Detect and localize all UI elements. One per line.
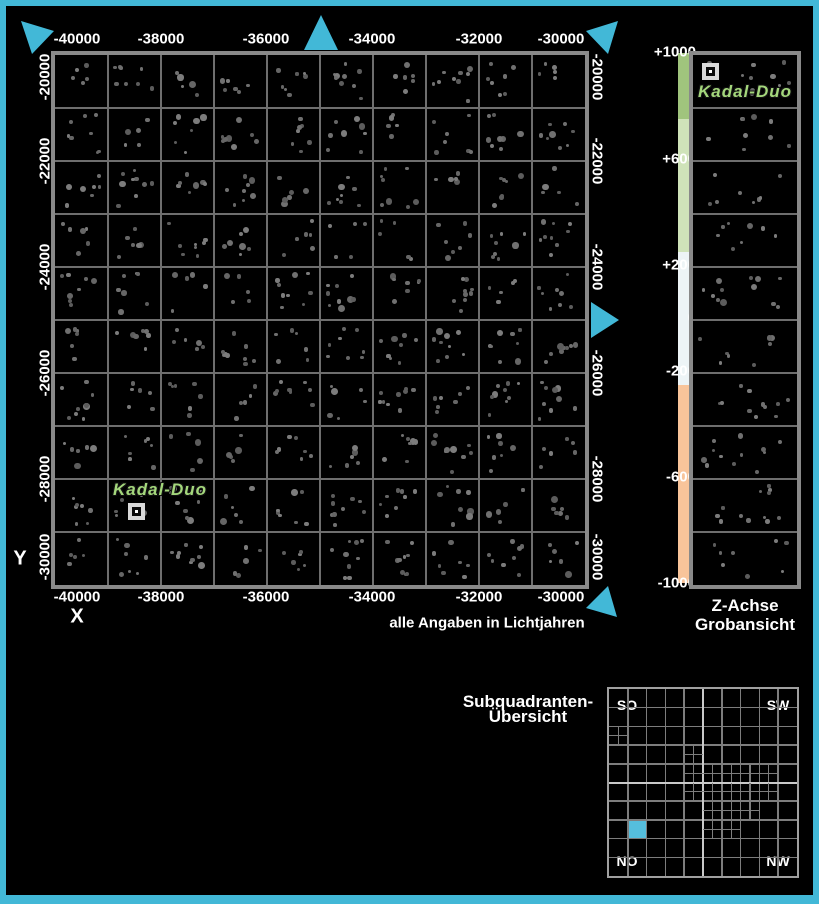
star [544, 360, 548, 364]
star [342, 74, 348, 80]
star [70, 447, 75, 452]
star [466, 99, 469, 102]
star [91, 393, 94, 396]
star [517, 573, 521, 577]
star [73, 327, 77, 331]
star [431, 440, 437, 446]
grid-line [425, 55, 427, 585]
star [194, 246, 197, 249]
star [225, 188, 229, 192]
star [232, 331, 236, 335]
star [569, 305, 573, 309]
star [702, 288, 705, 291]
star [193, 182, 199, 188]
star [548, 123, 551, 126]
star [393, 74, 398, 79]
grid-line [693, 266, 797, 268]
star [247, 299, 251, 303]
star [382, 400, 385, 403]
star [556, 396, 562, 402]
star [466, 564, 470, 568]
star [389, 115, 395, 121]
star [552, 549, 557, 554]
star [77, 288, 80, 291]
star [346, 356, 350, 360]
star [433, 396, 438, 401]
star [66, 184, 72, 190]
star [84, 277, 88, 281]
star [555, 243, 559, 247]
star [188, 406, 193, 411]
z-axis-strip-map[interactable] [689, 51, 801, 589]
star [86, 241, 90, 245]
star [190, 129, 193, 132]
star [134, 194, 138, 198]
star [381, 178, 385, 182]
nav-arrow-south-east[interactable] [586, 586, 617, 617]
star [566, 230, 569, 233]
star [731, 247, 735, 251]
star [405, 460, 409, 464]
star [357, 69, 362, 74]
star [190, 468, 194, 472]
star [300, 457, 303, 460]
star [405, 167, 409, 171]
star [172, 272, 178, 278]
star [448, 540, 454, 546]
star [542, 184, 549, 191]
star [350, 274, 354, 278]
z-system-label[interactable]: Kadal-Duo [698, 82, 792, 102]
star [299, 550, 303, 554]
star [434, 150, 438, 154]
star [394, 506, 398, 510]
star [404, 62, 410, 68]
star [292, 272, 298, 278]
star [275, 278, 279, 282]
star [469, 291, 473, 295]
star [299, 150, 302, 153]
x-tick-label: -40000 [54, 589, 101, 606]
star [304, 232, 309, 237]
star [294, 436, 298, 440]
star [121, 290, 126, 295]
star [220, 78, 225, 83]
star [75, 68, 79, 72]
system-marker-inner [132, 507, 141, 516]
y-tick-label: -20000 [589, 54, 606, 101]
star [515, 358, 521, 364]
grid-line [55, 372, 585, 374]
star [236, 117, 242, 123]
star [503, 74, 508, 79]
star [347, 564, 352, 569]
star [719, 519, 723, 523]
star [231, 144, 237, 150]
star [363, 222, 367, 226]
x-tick-label: -38000 [138, 589, 185, 606]
star [488, 413, 492, 417]
star [488, 286, 492, 290]
star [80, 504, 84, 508]
star [304, 522, 308, 526]
star [195, 93, 199, 97]
star [171, 309, 174, 312]
star [496, 433, 501, 438]
star [196, 254, 200, 258]
star [778, 440, 782, 444]
star [505, 180, 508, 183]
star [565, 515, 569, 519]
star [144, 439, 147, 442]
star [469, 150, 473, 154]
star [341, 507, 345, 511]
star [341, 130, 348, 137]
star [466, 490, 470, 494]
star [65, 203, 70, 208]
star [781, 570, 784, 573]
star [88, 508, 92, 512]
star [66, 273, 70, 277]
star [439, 396, 443, 400]
star [400, 489, 405, 494]
star [559, 291, 565, 297]
star [379, 339, 384, 344]
star [76, 407, 80, 411]
star [276, 68, 281, 73]
star [489, 469, 493, 473]
star [558, 146, 562, 150]
star [767, 335, 773, 341]
star [573, 342, 579, 348]
star [402, 333, 407, 338]
star [70, 344, 74, 348]
star [252, 359, 256, 363]
star [406, 554, 409, 557]
system-label[interactable]: Kadal-Duo [113, 480, 207, 500]
star [86, 522, 89, 525]
star [405, 572, 409, 576]
star [306, 358, 309, 361]
star [464, 277, 469, 282]
star [246, 290, 250, 294]
star [340, 194, 343, 197]
star [557, 343, 564, 350]
star [739, 514, 743, 518]
star [76, 251, 81, 256]
star [331, 388, 338, 395]
star [461, 277, 465, 281]
star [467, 444, 471, 448]
star [466, 386, 470, 390]
star [303, 188, 309, 194]
star [389, 134, 394, 139]
star [552, 387, 558, 393]
star [379, 391, 383, 395]
star [456, 330, 461, 335]
star [201, 345, 205, 349]
subquadrant-grid[interactable]: SO SW NO NW [607, 687, 799, 878]
star [233, 203, 237, 207]
star [281, 293, 285, 297]
star [334, 120, 339, 125]
grid-line [55, 531, 585, 533]
star [456, 79, 461, 84]
star [198, 394, 202, 398]
star [413, 489, 417, 493]
star [497, 330, 503, 336]
x-tick-label: -36000 [243, 589, 290, 606]
star [133, 334, 139, 340]
star [239, 243, 246, 250]
star [243, 357, 247, 361]
subq-subdivision-line [703, 810, 722, 811]
star [571, 441, 576, 446]
y-tick-label: -28000 [37, 456, 54, 503]
star [334, 255, 338, 259]
star [492, 113, 496, 117]
star [226, 79, 229, 82]
star [716, 234, 720, 238]
star [432, 120, 436, 124]
star [286, 294, 290, 298]
star [138, 388, 143, 393]
nav-arrow-east[interactable] [591, 302, 619, 338]
subq-subdivision-line [609, 735, 628, 736]
star [403, 89, 408, 94]
star [386, 124, 390, 128]
star [417, 279, 421, 283]
star [432, 551, 437, 556]
y-tick-label: -24000 [37, 244, 54, 291]
star [391, 336, 397, 342]
star [712, 449, 715, 452]
star [277, 176, 281, 180]
star [441, 571, 446, 576]
y-tick-label: -30000 [589, 534, 606, 581]
star [124, 82, 128, 86]
star [751, 284, 757, 290]
star [244, 344, 248, 348]
z-system-marker[interactable] [702, 63, 719, 80]
star [183, 509, 187, 513]
star [516, 342, 519, 345]
star [250, 193, 256, 199]
x-tick-label: -30000 [538, 589, 585, 606]
star [406, 255, 410, 259]
star [74, 412, 78, 416]
star [396, 392, 401, 397]
star [334, 76, 339, 81]
star [716, 278, 722, 284]
star [549, 408, 553, 412]
star [541, 292, 545, 296]
star [379, 503, 382, 506]
star [124, 543, 129, 548]
star [492, 455, 496, 459]
star [83, 114, 87, 118]
star [706, 137, 710, 141]
star [541, 219, 546, 224]
star [242, 199, 245, 202]
star [144, 555, 148, 559]
star [548, 543, 552, 547]
frame-bottom [0, 895, 819, 904]
star [223, 88, 227, 92]
star [290, 328, 294, 332]
star [184, 543, 187, 546]
star [742, 118, 745, 121]
star [544, 62, 547, 65]
star [732, 462, 736, 466]
star [385, 540, 390, 545]
star [63, 442, 66, 445]
star [437, 80, 441, 84]
star [277, 283, 281, 287]
star [746, 518, 750, 522]
star [140, 67, 143, 70]
star [459, 309, 463, 313]
star [414, 338, 418, 342]
star [76, 449, 79, 452]
star [358, 500, 361, 503]
star [554, 511, 558, 515]
star [458, 392, 462, 396]
star [573, 406, 577, 410]
star [289, 190, 294, 195]
star [125, 129, 131, 135]
star [280, 306, 283, 309]
star [538, 417, 542, 421]
y-tick-label: -20000 [37, 54, 54, 101]
subq-subdivision-line [759, 791, 778, 792]
star [231, 506, 234, 509]
star [566, 273, 570, 277]
star [565, 571, 572, 578]
star [243, 227, 249, 233]
star [767, 491, 771, 495]
star [498, 360, 502, 364]
star [769, 119, 773, 123]
star [511, 65, 516, 70]
nav-arrow-north[interactable] [304, 15, 338, 50]
star [118, 309, 124, 315]
nav-arrow-north-east[interactable] [586, 21, 618, 54]
star [765, 519, 770, 524]
y-tick-label: -22000 [589, 138, 606, 185]
grid-line [693, 531, 797, 533]
star [197, 555, 201, 559]
star [436, 359, 440, 363]
star [359, 97, 362, 100]
star [543, 235, 547, 239]
star [136, 272, 140, 276]
star [768, 135, 774, 141]
star [518, 328, 521, 331]
star [116, 204, 121, 209]
star [549, 451, 554, 456]
star [740, 453, 743, 456]
star [496, 300, 501, 305]
star [309, 233, 313, 237]
star [720, 288, 724, 292]
star [486, 511, 493, 518]
star [185, 516, 189, 520]
grid-line [693, 107, 797, 109]
system-marker[interactable] [128, 503, 145, 520]
star [740, 241, 743, 244]
star [438, 564, 442, 568]
star [763, 405, 767, 409]
star [497, 257, 500, 260]
star [563, 122, 568, 127]
star [303, 564, 306, 567]
star [145, 118, 150, 123]
star [552, 166, 557, 171]
star [226, 452, 232, 458]
subq-subdivision-line [684, 754, 703, 755]
nav-arrow-north-west[interactable] [21, 21, 54, 54]
star [445, 255, 451, 261]
star [360, 356, 364, 360]
star [291, 560, 295, 564]
star [282, 197, 288, 203]
star [69, 553, 74, 558]
star [326, 284, 329, 287]
star [116, 538, 120, 542]
star [236, 573, 241, 578]
star [742, 148, 746, 152]
star [178, 181, 182, 185]
star [403, 495, 407, 499]
star [774, 234, 778, 238]
star [350, 497, 355, 502]
star [538, 72, 542, 76]
star [380, 203, 384, 207]
star [503, 92, 507, 96]
grid-line [693, 478, 797, 480]
star [326, 148, 331, 153]
star [244, 545, 248, 549]
star [338, 305, 345, 312]
star [203, 182, 207, 186]
star [466, 72, 470, 76]
star [231, 459, 235, 463]
star [134, 177, 138, 181]
star [188, 191, 191, 194]
star [469, 451, 473, 455]
star [91, 278, 97, 284]
subq-highlighted-cell[interactable] [629, 821, 646, 838]
star [254, 139, 259, 144]
star [234, 416, 239, 421]
star [492, 203, 497, 208]
star [406, 205, 410, 209]
star [774, 415, 778, 419]
star [119, 181, 126, 188]
star [250, 133, 255, 138]
star [489, 62, 493, 66]
star [249, 486, 255, 492]
star [557, 191, 561, 195]
star [512, 242, 518, 248]
star [117, 255, 121, 259]
star [227, 240, 233, 246]
x-tick-label: -32000 [456, 589, 503, 606]
star [142, 182, 147, 187]
star [282, 551, 286, 555]
star [169, 434, 174, 439]
